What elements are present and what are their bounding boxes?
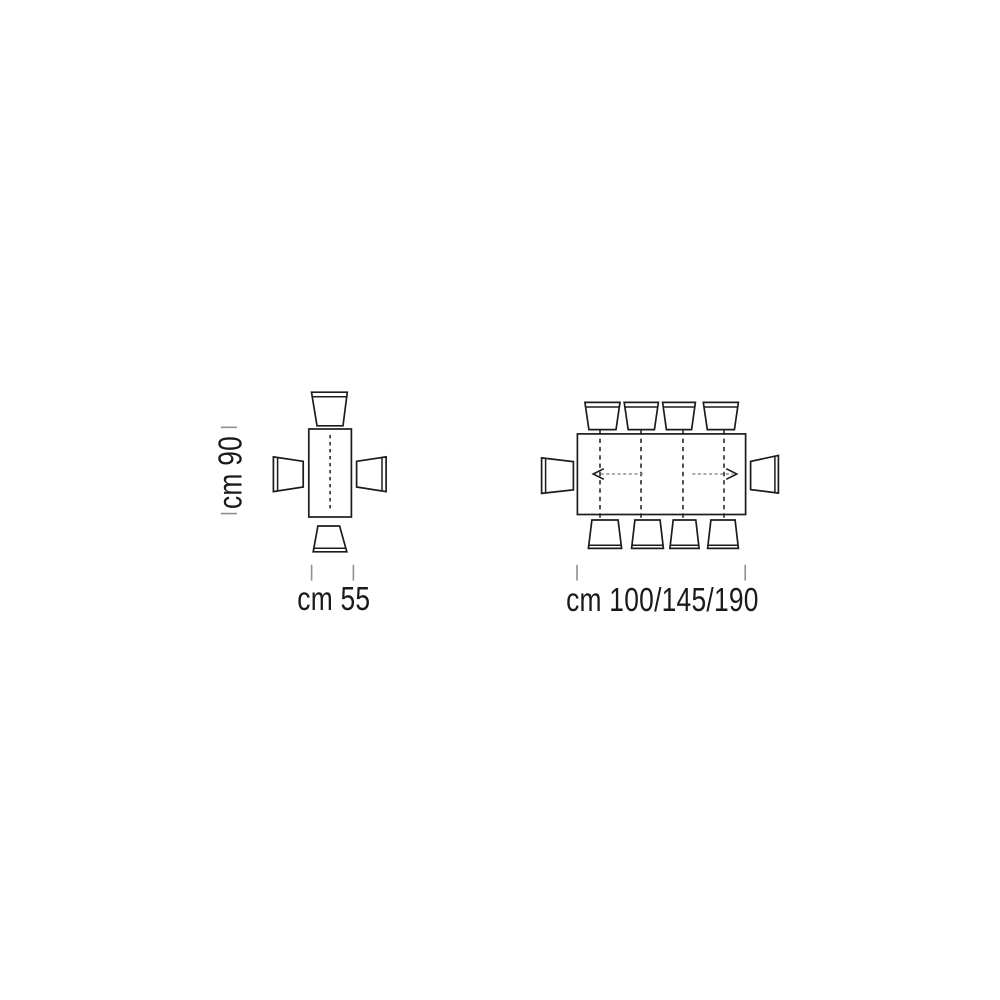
chair-south-icon [313, 526, 347, 552]
table-dimensions-diagram: cm 90 cm 55 [0, 0, 1000, 1000]
chair-east-icon [751, 455, 779, 493]
chair-west-icon [542, 458, 574, 494]
small-table-diagram [273, 392, 386, 552]
chair-south-3-icon [670, 520, 699, 548]
large-table-width-dimension [577, 565, 745, 581]
large-table-diagram [542, 402, 779, 548]
chair-west-icon [273, 457, 303, 492]
chair-north-2-icon [624, 402, 658, 429]
chair-north-1-icon [585, 402, 620, 429]
chair-north-3-icon [663, 402, 696, 429]
chair-north-icon [312, 392, 348, 426]
small-table-width-dimension [312, 565, 354, 581]
small-table-width-label: cm 55 [297, 581, 370, 617]
chair-south-4-icon [708, 520, 739, 548]
chair-east-icon [357, 457, 387, 492]
chair-north-4-icon [703, 402, 738, 429]
small-table-height-label: cm 90 [213, 436, 249, 509]
large-table-width-label: cm 100/145/190 [566, 582, 759, 618]
chair-south-2-icon [632, 520, 664, 548]
chair-south-1-icon [588, 520, 621, 548]
